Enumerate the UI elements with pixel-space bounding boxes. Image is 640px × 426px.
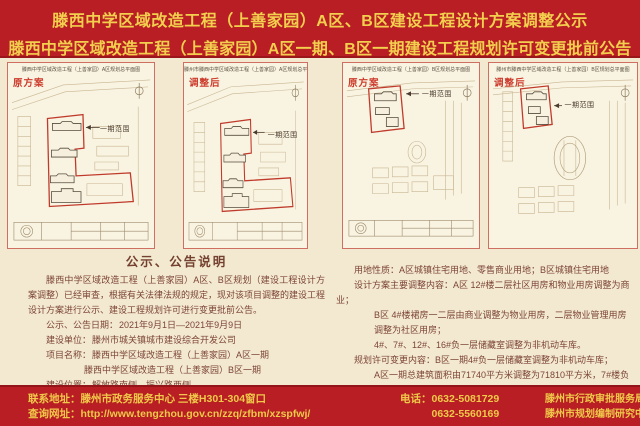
phone-label: 电话： bbox=[400, 392, 432, 422]
contact-left: 联系地址：滕州市政务服务中心 三楼H301-304窗口 查询网址：http://… bbox=[28, 392, 310, 422]
buildings bbox=[375, 92, 399, 127]
map-title: 滕州市滕西中学区域改造工程（上善家园）B区规划总平面图 bbox=[489, 66, 637, 75]
site-plan-drawing bbox=[343, 77, 479, 248]
phone-number-2: 0632-5560169 bbox=[432, 407, 500, 422]
contact-bar: 联系地址：滕州市政务服务中心 三楼H301-304窗口 查询网址：http://… bbox=[0, 385, 640, 426]
map-panel-b-adjusted: 滕州市滕西中学区域改造工程（上善家园）B区规划总平面图 调整后 bbox=[488, 62, 638, 249]
org-2: 滕州市规划编制研究中心 bbox=[545, 407, 640, 422]
map-panel-b-original: 滕西中学区域改造工程（上善家园）B区规划总平面图 原方案 bbox=[342, 62, 480, 249]
poster-title-line2: 滕西中学区域改造工程（上善家园）A区一期、B区一期建设工程规划许可变更批前公告 bbox=[0, 35, 640, 59]
buildings bbox=[526, 92, 548, 125]
poster-title-line1: 滕西中学区域改造工程（上善家园）A区、B区建设工程设计方案调整公示 bbox=[0, 0, 640, 31]
detail-land-use: 用地性质：A区城镇住宅用地、零售商业用地；B区城镇住宅用地 bbox=[336, 263, 634, 278]
detail-permit-change: 规划许可变更内容：B区一期4#负一层储藏室调整为非机动车库； bbox=[336, 353, 634, 368]
site-plan-drawing bbox=[489, 77, 637, 248]
phase-scope-label: 一期范围 bbox=[422, 89, 452, 99]
map-panel-a-adjusted: 滕州市滕西中学区域改造工程（上善家园）A区规划总平面图 调整后 bbox=[183, 62, 308, 249]
field-date: 公示、公告日期：2021年9月1日—2021年9月9日 bbox=[28, 318, 325, 333]
issuing-organizations: 滕州市行政审批服务局 滕州市规划编制研究中心 监制 bbox=[545, 392, 640, 422]
phase-scope-label: 一期范围 bbox=[268, 130, 298, 140]
buildings bbox=[223, 126, 249, 207]
website-url: http://www.tengzhou.gov.cn/zzq/zfbm/xzsp… bbox=[81, 408, 311, 420]
north-arrow-icon bbox=[621, 85, 629, 101]
field-project-name-2: 滕西中学区域改造工程（上善家园）B区一期 bbox=[28, 363, 325, 378]
field-project-name: 项目名称：滕西中学区域改造工程（上善家园）A区一期 bbox=[28, 348, 325, 363]
site-plan-drawing bbox=[184, 77, 307, 248]
detail-design-change-3: 4#、7#、12#、16#负一层储藏室调整为非机动车库。 bbox=[336, 338, 634, 353]
phase-scope-label: 一期范围 bbox=[100, 124, 130, 134]
phone-number-1: 0632-5081729 bbox=[432, 392, 500, 407]
map-title: 滕西中学区域改造工程（上善家园）B区规划总平面图 bbox=[343, 66, 479, 75]
contact-website: 查询网址：http://www.tengzhou.gov.cn/zzq/zfbm… bbox=[28, 407, 310, 422]
map-title: 滕州市滕西中学区域改造工程（上善家园）A区规划总平面图 bbox=[184, 66, 307, 75]
masthead: 滕西中学区域改造工程（上善家园）A区、B区建设工程设计方案调整公示 滕西中学区域… bbox=[0, 0, 640, 58]
notice-intro: 滕西中学区域改造工程（上善家园）A区、B区规划（建设工程设计方案调整）已经审查，… bbox=[28, 273, 325, 318]
title-block bbox=[349, 220, 473, 236]
contact-phones: 电话： 0632-5081729 0632-5560169 bbox=[400, 392, 499, 422]
notice-poster: 滕西中学区域改造工程（上善家园）A区、B区建设工程设计方案调整公示 滕西中学区域… bbox=[0, 0, 640, 426]
field-builder: 建设单位：滕州市城关镇城市建设综合开发公司 bbox=[28, 333, 325, 348]
detail-design-change-2: B区 4#楼裙房一二层由商业调整为物业用房，二层物业管理用房调整为社区用房； bbox=[336, 308, 634, 338]
leader-arrow-icon bbox=[554, 103, 562, 108]
buildings bbox=[50, 121, 81, 202]
north-arrow-icon bbox=[135, 83, 143, 99]
north-arrow-icon bbox=[292, 85, 299, 101]
map-panel-a-original: 滕西中学区域改造工程（上善家园）A区规划总平面图 原方案 bbox=[7, 62, 155, 249]
leader-arrow-icon bbox=[406, 91, 419, 96]
phase-scope-label: 一期范围 bbox=[564, 100, 594, 110]
title-block bbox=[189, 222, 302, 240]
map-title: 滕西中学区域改造工程（上善家园）A区规划总平面图 bbox=[8, 66, 154, 75]
running-track bbox=[554, 136, 586, 179]
notice-heading: 公示、公告说明 bbox=[28, 255, 325, 270]
contact-address: 联系地址：滕州市政务服务中心 三楼H301-304窗口 bbox=[28, 392, 310, 407]
site-plan-drawing bbox=[8, 77, 154, 248]
title-block bbox=[14, 222, 148, 240]
org-1: 滕州市行政审批服务局 bbox=[545, 392, 640, 407]
detail-design-change: 设计方案主要调整内容：A区 12#楼二层社区用房和物业用房调整为商业； bbox=[336, 278, 634, 308]
